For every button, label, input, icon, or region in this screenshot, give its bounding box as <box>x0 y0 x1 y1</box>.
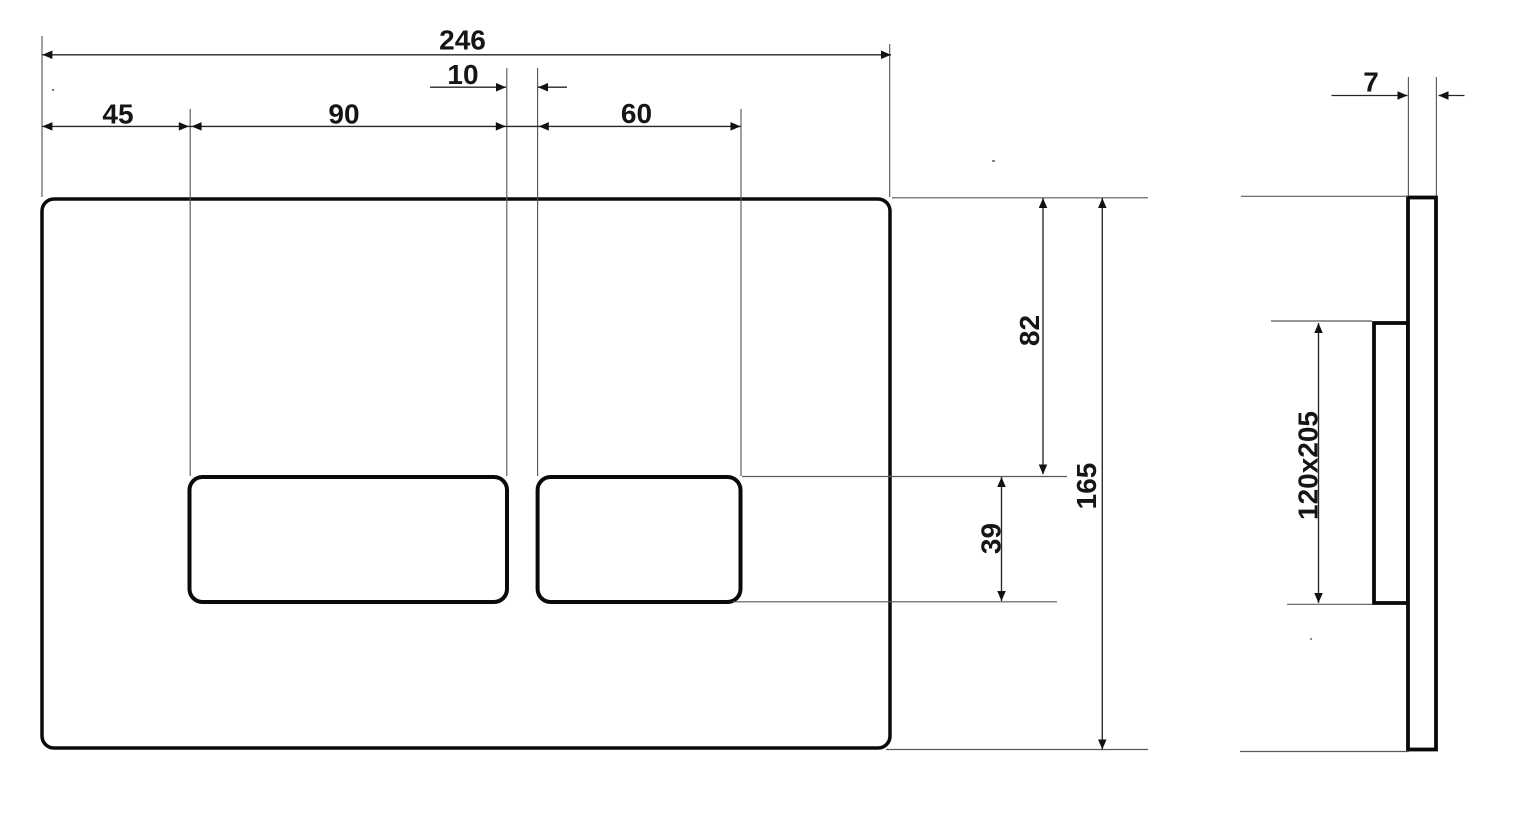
svg-text:7: 7 <box>1363 67 1379 98</box>
svg-text:90: 90 <box>328 99 359 130</box>
svg-text:10: 10 <box>447 59 478 90</box>
svg-text:82: 82 <box>1014 315 1045 346</box>
svg-text:246: 246 <box>439 25 486 56</box>
svg-text:165: 165 <box>1071 463 1102 510</box>
svg-text:120x205: 120x205 <box>1293 411 1324 520</box>
svg-text:45: 45 <box>102 99 133 130</box>
svg-text:39: 39 <box>976 523 1007 554</box>
svg-text:60: 60 <box>621 98 652 129</box>
